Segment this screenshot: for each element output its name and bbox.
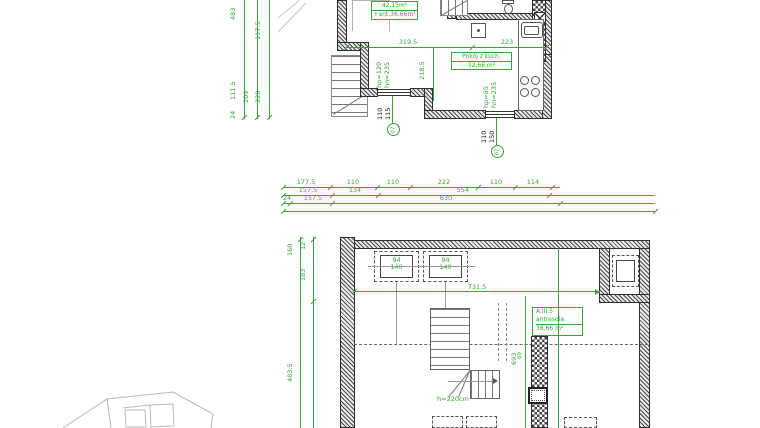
chimney-column	[531, 336, 548, 428]
tick	[330, 201, 336, 207]
window-size-label: 110	[481, 131, 488, 143]
tick	[547, 193, 553, 199]
tick	[281, 185, 287, 191]
dimension-line	[346, 47, 546, 48]
dim-label: 183	[300, 269, 307, 281]
wall	[599, 294, 650, 303]
room-name: Pokój z kuch.	[452, 53, 511, 62]
furniture-outline	[466, 416, 497, 428]
dimension-line	[354, 291, 600, 292]
dim-label: 114	[527, 179, 539, 186]
tick	[653, 209, 659, 215]
stove-burner-icon	[520, 88, 529, 97]
room-area: 32,66 m²	[452, 62, 511, 70]
window-centerline	[368, 266, 475, 267]
dim-label: 110	[490, 179, 502, 186]
tick	[408, 185, 414, 191]
mezzanine-stairs-flight	[430, 308, 470, 370]
area-total: 42,15m²	[372, 2, 417, 11]
window	[377, 89, 411, 96]
room-area: 36,66 m²	[536, 325, 582, 333]
dim-label: 483	[230, 8, 237, 20]
room-label-box: Pokój z kuch. 32,66 m²	[451, 52, 512, 70]
axis-marker-icon: 07	[387, 123, 400, 136]
dim-label: 554	[457, 187, 469, 194]
dimension-row	[283, 187, 560, 188]
tick	[242, 115, 248, 121]
dimension-line	[433, 47, 434, 101]
dim-label: 111.5	[230, 81, 237, 100]
dim-label: 117.5	[255, 21, 262, 40]
dim-label: 218.5	[419, 61, 426, 80]
tick	[267, 115, 273, 121]
tick	[558, 201, 564, 207]
window-height-label: hn=235	[384, 62, 391, 88]
tick	[550, 185, 556, 191]
wall	[360, 88, 378, 97]
hob-burner	[477, 29, 480, 32]
area-mezzanine: +ant.36,66m²	[372, 11, 417, 19]
dim-chain-line	[300, 237, 301, 428]
dim-label: 483.5	[287, 363, 294, 382]
roof-dashed-line	[506, 303, 507, 361]
room-name: antresola	[536, 316, 582, 325]
window	[485, 111, 515, 118]
stove-burner-icon	[520, 76, 529, 85]
dim-label: 209	[243, 91, 250, 103]
dim-label: 222	[438, 179, 450, 186]
roof-window-size: 94 140	[423, 257, 468, 271]
window-height-label: hn=235	[491, 82, 498, 108]
dim-label: 24	[230, 111, 237, 119]
dim-label: 223	[501, 39, 513, 46]
dim-chain-line	[269, 0, 270, 119]
roof-dashed-line	[498, 303, 499, 361]
dim-label: 110	[387, 179, 399, 186]
mezzanine-stairs-winder	[470, 370, 500, 399]
window-height-label: hp=120	[376, 62, 383, 88]
sink-basin	[524, 26, 539, 35]
floor-plan-drawing: 319.5 223 218.5 hp=120 hn=235 hp=85 hn=2…	[0, 0, 760, 428]
window-size-label: 115	[385, 108, 392, 120]
wall	[340, 237, 355, 428]
window-size-label: 110	[377, 108, 384, 120]
tick	[470, 45, 476, 51]
dim-label: 731.5	[468, 284, 487, 291]
tick	[328, 185, 334, 191]
dim-label: 319.5	[399, 39, 418, 46]
stove-burner-icon	[531, 88, 540, 97]
dim-label: 157.5	[304, 195, 323, 202]
dimension-row	[283, 203, 655, 204]
axis-line	[392, 96, 393, 123]
dimension-row	[283, 195, 655, 196]
site-plan-outline	[55, 388, 215, 428]
tick	[330, 193, 336, 199]
dim-label: 160	[287, 244, 294, 256]
tick	[513, 185, 519, 191]
room-code: A.III.5	[536, 308, 582, 316]
dim-label: 220	[255, 91, 262, 103]
furniture-outline	[432, 416, 463, 428]
recess-window-inner	[616, 260, 635, 282]
stair-arrow-icon	[493, 378, 498, 384]
tick	[375, 185, 381, 191]
stair-height-label: h=220cm	[437, 396, 469, 403]
window-height-label: hp=85	[483, 86, 490, 108]
dim-arrow-icon	[595, 289, 600, 295]
toilet-icon	[504, 4, 513, 14]
roof-window-size: 94 140	[374, 257, 419, 271]
dim-label: 110	[347, 179, 359, 186]
height-dashed-line	[354, 344, 648, 345]
flue-icon	[528, 387, 548, 404]
wall	[424, 110, 486, 119]
dim-label: 134	[349, 187, 361, 194]
dim-label: 177.5	[297, 179, 316, 186]
dimension-row	[283, 211, 655, 212]
stair-direction-line	[448, 381, 494, 382]
stove-burner-icon	[531, 76, 540, 85]
dimension-line	[525, 296, 526, 428]
dim-label: 24	[283, 195, 291, 202]
dim-label: 157.5	[299, 187, 318, 194]
window-size-label: 150	[489, 131, 496, 143]
flue-inner	[531, 390, 545, 401]
dimension-line	[558, 248, 559, 428]
axis-marker-icon: 07	[491, 145, 504, 158]
dim-label: 69	[517, 352, 524, 359]
wall	[639, 248, 650, 428]
tick	[281, 209, 287, 215]
tick	[255, 115, 261, 121]
dim-label: 630	[440, 195, 452, 202]
dim-chain-line	[313, 237, 314, 428]
site-boundary-lines	[276, 0, 318, 34]
area-label-box: 42,15m² +ant.36,66m²	[371, 1, 418, 20]
wall	[599, 248, 610, 296]
furniture-outline	[564, 417, 597, 428]
tick	[476, 185, 482, 191]
tick	[376, 193, 382, 199]
dim-label: 12	[300, 242, 307, 250]
axis-line	[496, 118, 497, 145]
